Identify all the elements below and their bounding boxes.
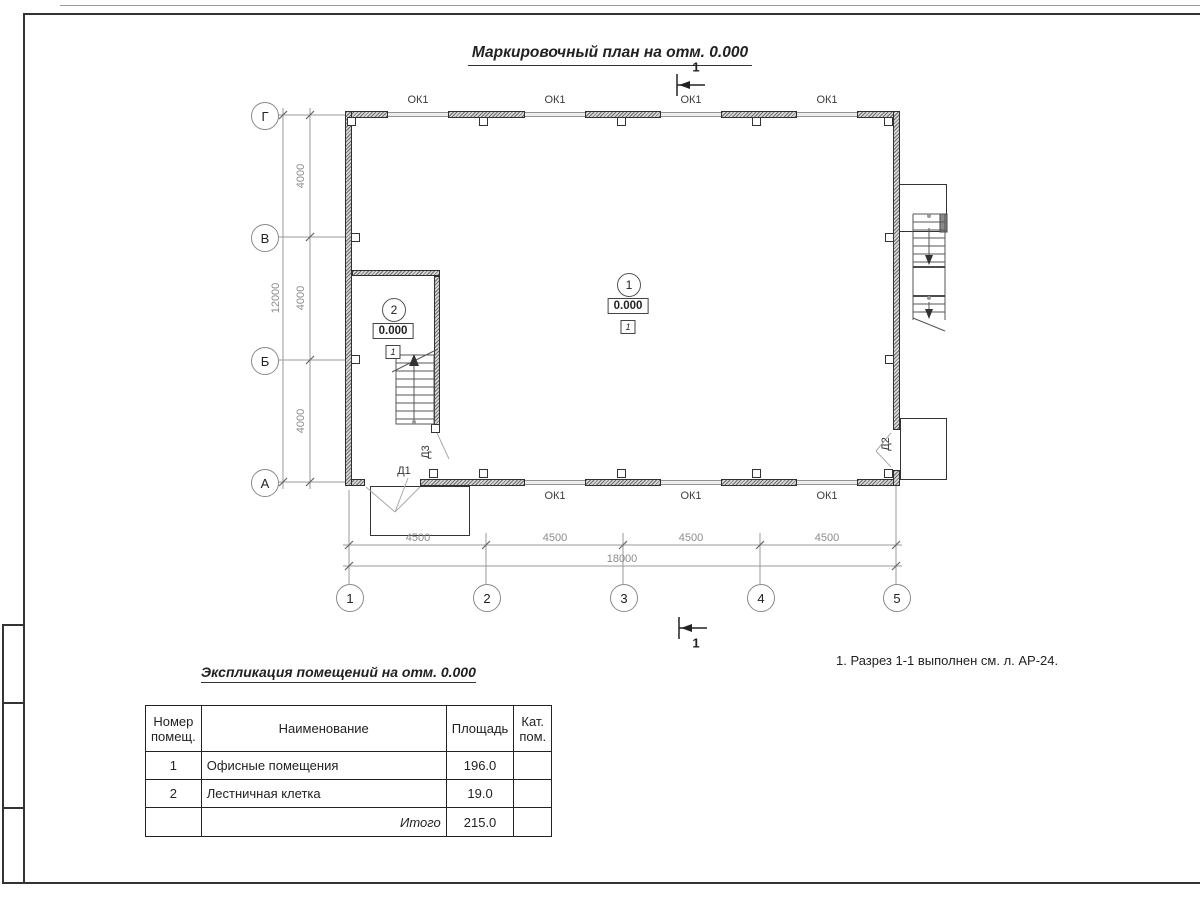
dim-bottom-2: 4500 bbox=[543, 532, 567, 544]
window-label: ОК1 bbox=[544, 94, 565, 106]
column-mark bbox=[351, 355, 360, 364]
header-name: Наименование bbox=[201, 706, 446, 752]
column-mark bbox=[479, 469, 488, 478]
drawing-title: Маркировочный план на отм. 0.000 bbox=[468, 44, 752, 66]
column-mark bbox=[617, 117, 626, 126]
stamp-divider bbox=[2, 702, 24, 704]
cell-cat bbox=[514, 780, 552, 808]
section-mark-label-bottom: 1 bbox=[692, 636, 699, 651]
cell-cat bbox=[514, 752, 552, 780]
window-ok1 bbox=[797, 480, 857, 485]
window-label: ОК1 bbox=[816, 490, 837, 502]
section-mark-label-top: 1 bbox=[692, 60, 699, 75]
note-text: 1. Разрез 1-1 выполнен см. л. АР-24. bbox=[836, 653, 1058, 668]
dim-bottom-1: 4500 bbox=[406, 532, 430, 544]
column-mark bbox=[885, 233, 894, 242]
axis-circle-5: 5 bbox=[883, 584, 911, 612]
wall-segment bbox=[721, 479, 797, 486]
window-label: ОК1 bbox=[407, 94, 428, 106]
wall-segment bbox=[345, 111, 352, 486]
window-ok1 bbox=[388, 112, 448, 117]
axis-label: 4 bbox=[757, 591, 764, 606]
axis-circle-4: 4 bbox=[747, 584, 775, 612]
room-number-text: 2 bbox=[391, 303, 398, 317]
column-mark bbox=[884, 469, 893, 478]
axis-label: А bbox=[261, 476, 270, 491]
window-ok1 bbox=[525, 112, 585, 117]
cell-area: 196.0 bbox=[446, 752, 514, 780]
dim-bottom-3: 4500 bbox=[679, 532, 703, 544]
partition-wall bbox=[352, 270, 440, 276]
column-mark bbox=[885, 355, 894, 364]
stamp-column-line bbox=[2, 624, 4, 884]
cell-name: Лестничная клетка bbox=[201, 780, 446, 808]
header-area: Площадь bbox=[446, 706, 514, 752]
axis-circle-1: 1 bbox=[336, 584, 364, 612]
wall-segment bbox=[420, 479, 525, 486]
table-total-row: Итого 215.0 bbox=[146, 808, 552, 837]
axis-label: 1 bbox=[346, 591, 353, 606]
window-label: ОК1 bbox=[680, 490, 701, 502]
axis-circle-v: В bbox=[251, 224, 279, 252]
column-mark bbox=[429, 469, 438, 478]
cell-cat bbox=[514, 808, 552, 837]
axis-label: Г bbox=[261, 109, 268, 124]
axis-label: Б bbox=[261, 354, 270, 369]
table-row: 2 Лестничная клетка 19.0 bbox=[146, 780, 552, 808]
axis-label: 5 bbox=[893, 591, 900, 606]
window-ok1 bbox=[661, 480, 721, 485]
dim-left-total: 12000 bbox=[270, 283, 282, 314]
column-mark bbox=[752, 469, 761, 478]
drawing-sheet: Маркировочный план на отм. 0.000 bbox=[0, 0, 1200, 900]
dim-left-2: 4000 bbox=[295, 286, 307, 310]
column-mark bbox=[347, 117, 356, 126]
room-number-1: 1 bbox=[617, 273, 641, 297]
table-row: 1 Офисные помещения 196.0 bbox=[146, 752, 552, 780]
dim-left-1: 4000 bbox=[295, 164, 307, 188]
column-mark bbox=[752, 117, 761, 126]
door-label-d3: Д3 bbox=[420, 445, 432, 459]
total-label: Итого bbox=[201, 808, 446, 837]
cell-num: 1 bbox=[146, 752, 202, 780]
exterior-stair-platform bbox=[899, 184, 947, 232]
axis-circle-3: 3 bbox=[610, 584, 638, 612]
frame-top bbox=[23, 13, 1200, 15]
axis-label: 2 bbox=[483, 591, 490, 606]
axis-circle-a: А bbox=[251, 469, 279, 497]
door-d2-platform bbox=[900, 418, 947, 480]
window-label: ОК1 bbox=[544, 490, 565, 502]
wall-segment bbox=[893, 470, 900, 486]
axis-label: В bbox=[261, 231, 270, 246]
axis-circle-2: 2 bbox=[473, 584, 501, 612]
frame-bottom bbox=[2, 882, 1200, 884]
wall-segment bbox=[893, 111, 900, 430]
axis-circle-b: Б bbox=[251, 347, 279, 375]
frame-left bbox=[23, 13, 25, 884]
header-num: Номер помещ. bbox=[146, 706, 202, 752]
column-mark bbox=[617, 469, 626, 478]
room-1-elevation: 0.000 bbox=[608, 298, 649, 314]
dim-left-3: 4000 bbox=[295, 409, 307, 433]
cell-num: 2 bbox=[146, 780, 202, 808]
stair-room2 bbox=[392, 349, 438, 424]
cell-name: Офисные помещения bbox=[201, 752, 446, 780]
axis-label: 3 bbox=[620, 591, 627, 606]
axis-circle-g: Г bbox=[251, 102, 279, 130]
partition-wall bbox=[434, 276, 440, 433]
cell-num bbox=[146, 808, 202, 837]
room-specification-table: Номер помещ. Наименование Площадь Кат. п… bbox=[145, 705, 552, 837]
table-title: Экспликация помещений на отм. 0.000 bbox=[201, 664, 476, 683]
door-label-d1: Д1 bbox=[397, 465, 411, 477]
dim-bottom-4: 4500 bbox=[815, 532, 839, 544]
window-label: ОК1 bbox=[680, 94, 701, 106]
sheet-edge-line bbox=[60, 5, 1200, 6]
total-area: 215.0 bbox=[446, 808, 514, 837]
column-mark bbox=[351, 233, 360, 242]
stamp-divider bbox=[2, 807, 24, 809]
column-mark bbox=[884, 117, 893, 126]
room-2-elevation: 0.000 bbox=[373, 323, 414, 339]
window-ok1 bbox=[661, 112, 721, 117]
window-ok1 bbox=[797, 112, 857, 117]
stamp-divider bbox=[2, 624, 24, 626]
cell-area: 19.0 bbox=[446, 780, 514, 808]
room-number-2: 2 bbox=[382, 298, 406, 322]
door-label-d2: Д2 bbox=[880, 437, 892, 451]
wall-segment bbox=[585, 479, 661, 486]
entrance-porch bbox=[370, 486, 470, 536]
header-cat: Кат. пом. bbox=[514, 706, 552, 752]
room-2-floor-type: 1 bbox=[385, 345, 400, 359]
door-jamb-mark bbox=[431, 424, 440, 433]
dim-bottom-total: 18000 bbox=[607, 553, 638, 565]
window-label: ОК1 bbox=[816, 94, 837, 106]
column-mark bbox=[479, 117, 488, 126]
room-1-floor-type: 1 bbox=[620, 320, 635, 334]
room-number-text: 1 bbox=[626, 278, 633, 292]
section-marks bbox=[677, 74, 707, 639]
window-ok1 bbox=[525, 480, 585, 485]
